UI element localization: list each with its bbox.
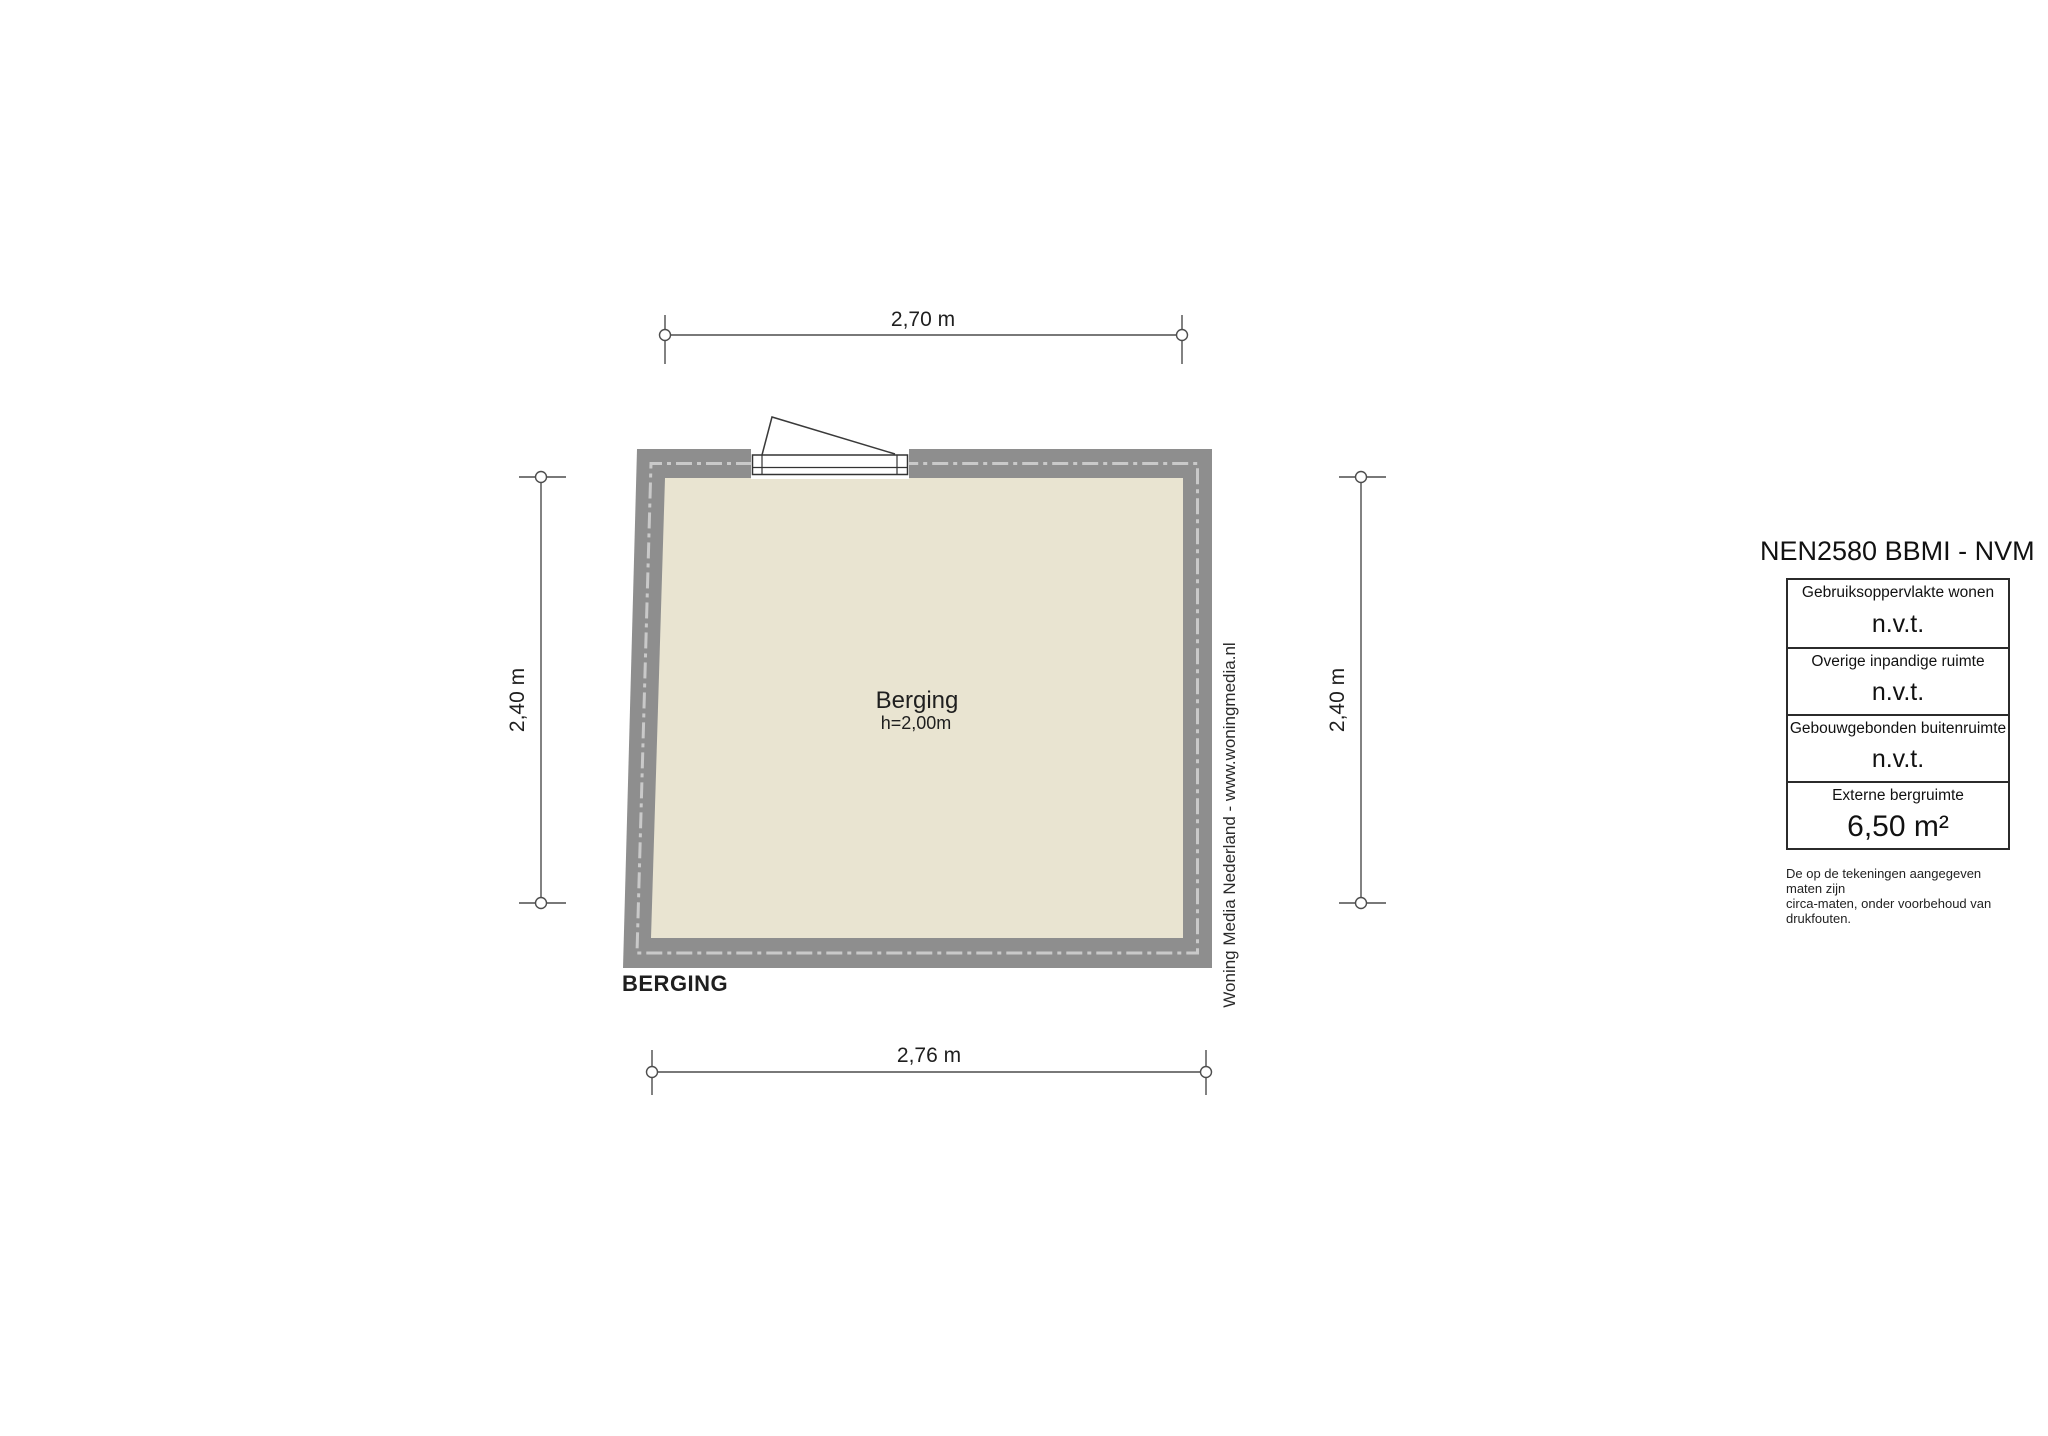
legend-row-value: n.v.t. — [1872, 738, 1924, 781]
door — [751, 417, 909, 479]
legend-row: Gebruiksoppervlakte wonen n.v.t. — [1788, 580, 2008, 647]
legend-title: NEN2580 BBMI - NVM — [1760, 536, 2020, 566]
floorplan-canvas: 2,70 m 2,76 m 2,40 m 2,40 m Berging h=2,… — [0, 0, 2048, 1436]
legend-row-label: Externe bergruimte — [1832, 787, 1964, 805]
dim-label-left: 2,40 m — [506, 668, 529, 732]
legend-row-value: 6,50 m² — [1847, 805, 1949, 848]
legend-row: Overige inpandige ruimte n.v.t. — [1788, 647, 2008, 714]
room-height-label: h=2,00m — [881, 713, 952, 733]
legend-row: Externe bergruimte 6,50 m² — [1788, 781, 2008, 848]
legend-row-label: Overige inpandige ruimte — [1811, 653, 1984, 671]
dim-label-bottom: 2,76 m — [897, 1044, 961, 1067]
legend-disclaimer-line2: circa-maten, onder voorbehoud van drukfo… — [1786, 896, 2018, 926]
legend-row-value: n.v.t. — [1872, 602, 1924, 647]
legend-row: Gebouwgebonden buitenruimte n.v.t. — [1788, 714, 2008, 781]
dim-label-top: 2,70 m — [891, 308, 955, 331]
plan-title: BERGING — [622, 971, 728, 996]
door-frame — [753, 455, 908, 475]
legend-row-value: n.v.t. — [1872, 671, 1924, 714]
legend: NEN2580 BBMI - NVM Gebruiksoppervlakte w… — [1760, 536, 2020, 566]
legend-disclaimer: De op de tekeningen aangegeven maten zij… — [1786, 866, 2018, 926]
dim-label-right: 2,40 m — [1326, 668, 1349, 732]
watermark: Woning Media Nederland - www.woningmedia… — [1220, 642, 1239, 1007]
room-label: Berging — [876, 687, 959, 714]
legend-row-label: Gebouwgebonden buitenruimte — [1790, 720, 2006, 738]
legend-disclaimer-line1: De op de tekeningen aangegeven maten zij… — [1786, 866, 2018, 896]
legend-table: Gebruiksoppervlakte wonen n.v.t. Overige… — [1786, 578, 2010, 850]
legend-row-label: Gebruiksoppervlakte wonen — [1802, 584, 1994, 602]
